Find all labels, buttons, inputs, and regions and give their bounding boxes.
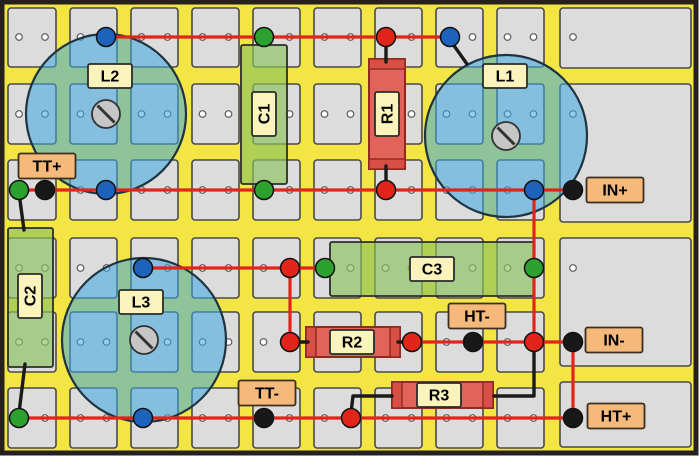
stripboard-svg: L1L2L3C1C2C3R1R2R3TT+IN+HT-IN-TT-HT+	[0, 0, 700, 467]
terminal-dot-green	[10, 181, 29, 200]
terminal-dot-red	[281, 333, 300, 352]
terminal-dot-blue	[441, 28, 460, 47]
terminal-dot-red	[377, 181, 396, 200]
hole	[321, 111, 328, 118]
terminal-dot-blue	[97, 28, 116, 47]
hole	[16, 111, 23, 118]
hole	[16, 34, 23, 41]
hole	[469, 34, 476, 41]
resistor-end-cap	[483, 382, 493, 408]
io-label-ht-minus: HT-	[464, 309, 490, 326]
pad-wide	[560, 8, 691, 68]
terminal-dot-red	[403, 333, 422, 352]
hole	[570, 34, 577, 41]
terminal-dot-blue	[134, 259, 153, 278]
component-label-l2: L2	[101, 69, 120, 86]
terminal-dot-red	[281, 259, 300, 278]
terminal-dot-red	[525, 333, 544, 352]
hole	[408, 111, 415, 118]
component-label-c2: C2	[23, 286, 40, 307]
terminal-dot-green	[316, 259, 335, 278]
terminal-dot-black	[255, 409, 274, 428]
terminal-dot-black	[564, 181, 583, 200]
component-label-r3: R3	[429, 388, 450, 405]
io-label-tt-minus: TT-	[255, 386, 279, 403]
io-label-in-minus: IN-	[603, 333, 624, 350]
component-label-c3: C3	[422, 262, 443, 279]
hole	[77, 265, 84, 272]
hole	[530, 34, 537, 41]
hole	[570, 265, 577, 272]
circuit-board-diagram: L1L2L3C1C2C3R1R2R3TT+IN+HT-IN-TT-HT+	[0, 0, 700, 467]
terminal-dot-blue	[525, 181, 544, 200]
terminal-dot-green	[255, 28, 274, 47]
io-label-in-plus: IN+	[602, 183, 627, 200]
hole	[347, 111, 354, 118]
terminal-dot-red	[377, 28, 396, 47]
component-label-r2: R2	[342, 335, 363, 352]
terminal-dot-green	[255, 181, 274, 200]
terminal-dot-black	[564, 409, 583, 428]
terminal-dot-black	[564, 333, 583, 352]
io-label-tt-plus: TT+	[33, 159, 62, 176]
component-label-c1: C1	[257, 104, 274, 125]
hole	[504, 34, 511, 41]
component-label-r1: R1	[380, 104, 397, 125]
hole	[260, 339, 267, 346]
terminal-dot-green	[10, 409, 29, 428]
terminal-dot-blue	[97, 181, 116, 200]
terminal-dot-black	[36, 181, 55, 200]
component-label-l1: L1	[496, 69, 515, 86]
terminal-dot-black	[464, 333, 483, 352]
resistor-end-cap	[392, 382, 402, 408]
hole	[225, 111, 232, 118]
component-label-l3: L3	[132, 295, 151, 312]
terminal-dot-red	[342, 409, 361, 428]
hole	[42, 34, 49, 41]
hole	[199, 111, 206, 118]
terminal-dot-blue	[134, 409, 153, 428]
io-label-ht-plus: HT+	[601, 409, 632, 426]
terminal-dot-green	[525, 259, 544, 278]
